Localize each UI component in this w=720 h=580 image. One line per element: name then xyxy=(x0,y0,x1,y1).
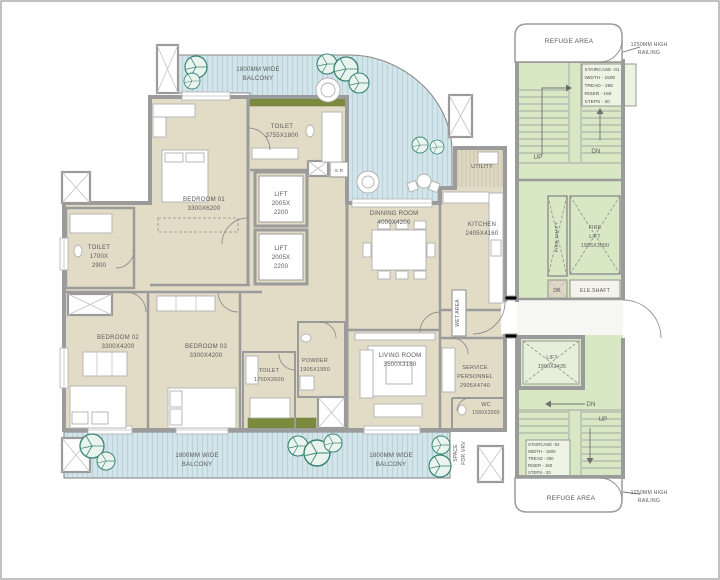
floor-plan-drawing: BEDROOM 01 3300X6200 TOILET 3755X1800 LI… xyxy=(0,0,720,580)
living-room-label: LIVING ROOM xyxy=(379,352,422,359)
staircase1-spec2: WIDTH - 1500 xyxy=(585,75,616,81)
lift-b-dim2: 2200 xyxy=(274,263,289,270)
balcony-br-label1: 1800MM WIDE xyxy=(369,452,413,459)
bedroom01-label: BEDROOM 01 xyxy=(183,196,225,203)
toilet-left-label: TOILET xyxy=(88,244,110,251)
fire-lift-dims: 1985X3000 xyxy=(581,243,609,249)
railing-top-label1: 1250MM HIGH xyxy=(631,42,668,48)
service-dims: 2905X4740 xyxy=(460,383,490,389)
service-label2: PERSONNEL xyxy=(457,374,493,380)
dining-room-label: DINNING ROOM xyxy=(370,210,419,217)
ele-shaft-label: ELE.SHAFT xyxy=(580,288,611,294)
toilet-top-label: TOILET xyxy=(271,123,293,130)
toilet-left-dim1: 1700X xyxy=(90,253,109,260)
kitchen-dims: 2405X4160 xyxy=(466,230,499,237)
stair2-up-label: UP xyxy=(599,416,608,423)
bedroom02-label: BEDROOM 02 xyxy=(97,334,139,341)
staircase1-spec5: STEPS - 20 xyxy=(585,99,611,105)
powder-dims: 1905X1950 xyxy=(300,367,330,373)
dining-room-dims: 4000X4200 xyxy=(378,219,411,226)
service-label1: SERVICE xyxy=(462,365,488,371)
bedroom01-dims: 3300X6200 xyxy=(188,205,221,212)
toilet-left-dim2: 2900 xyxy=(92,262,107,269)
staircase2-spec1: STAIRCASE -02 xyxy=(528,442,560,447)
balcony-bl-label1: 1800MM WIDE xyxy=(175,452,219,459)
floor-plan-page: BEDROOM 01 3300X6200 TOILET 3755X1800 LI… xyxy=(0,0,720,580)
staircase2-spec3: TREAD - 250 xyxy=(528,456,554,461)
lift-shaft-a xyxy=(255,172,307,226)
staircase2-spec5: STEPS - 20 xyxy=(528,470,551,475)
core-lift-dims: 1900X2435 xyxy=(538,364,566,370)
lift-b-dim1: 2005X xyxy=(272,254,291,261)
balcony-br-label2: BALCONY xyxy=(376,461,407,468)
wc-label: WC xyxy=(481,402,491,408)
balcony-bl-label2: BALCONY xyxy=(182,461,213,468)
vrv-label2: FOR VRV xyxy=(461,441,467,465)
staircase1-spec1: STAIRCASE -01 xyxy=(585,67,620,73)
refuge-bottom-label: REFUGE AREA xyxy=(547,495,596,502)
bedroom03-label: BEDROOM 03 xyxy=(185,343,227,350)
lift-a-dim1: 2005X xyxy=(272,200,291,207)
fire-lift-label1: FIRE xyxy=(589,225,602,231)
core-lift-box xyxy=(519,337,583,388)
fire-shaft-label: FIRE SHAFT xyxy=(554,222,560,252)
toilet-top-dims: 3755X1800 xyxy=(266,132,299,139)
stair1-up-label: UP xyxy=(534,154,543,161)
railing-bottom-label2: RAILING xyxy=(638,498,660,504)
railing-bottom-label1: 1250MM HIGH xyxy=(631,490,668,496)
lift-a-dim2: 2200 xyxy=(274,209,289,216)
railing-top-label2: RAILING xyxy=(638,50,660,56)
refuge-top-label: REFUGE AREA xyxy=(545,38,594,45)
bedroom02-dims: 3300X4200 xyxy=(102,343,135,350)
balcony-top-label2: BALCONY xyxy=(243,75,274,82)
staircase2-spec4: RISER - 160 xyxy=(528,463,553,468)
lift-a-label: LIFT xyxy=(274,191,287,198)
vrv-label1: SPACE xyxy=(453,444,459,462)
stair2-dn-label: DN xyxy=(586,401,595,408)
kitchen-label: KITCHEN xyxy=(468,221,496,228)
stair1-dn-label: DN xyxy=(591,148,600,155)
staircase1-spec4: RISER - 160 xyxy=(585,91,612,97)
fire-lift-label2: LIFT xyxy=(589,234,601,240)
lift-b-label: LIFT xyxy=(274,245,287,252)
staircase2-spec2: WIDTH - 1500 xyxy=(528,449,556,454)
balcony-top-label1: 1800MM WIDE xyxy=(236,66,280,73)
toilet-mid-label: TOILET xyxy=(259,368,280,374)
bedroom03-dims: 3300X4200 xyxy=(190,352,223,359)
living-room-dims: 3500X3180 xyxy=(384,361,417,368)
wet-area-label: WET AREA xyxy=(455,299,461,327)
planter-bottom xyxy=(248,418,316,428)
staircase1-spec3: TREAD - 250 xyxy=(585,83,614,89)
powder-label: POWDER xyxy=(302,358,328,364)
db-label: DB xyxy=(553,288,561,294)
core-lift-label: LIFT xyxy=(546,355,558,361)
toilet-mid-dims: 1700X2600 xyxy=(254,377,284,383)
utility-label: UTILITY xyxy=(471,164,493,170)
store-room-label: S.R xyxy=(335,168,344,174)
wc-dims: 1560X2000 xyxy=(472,410,499,416)
